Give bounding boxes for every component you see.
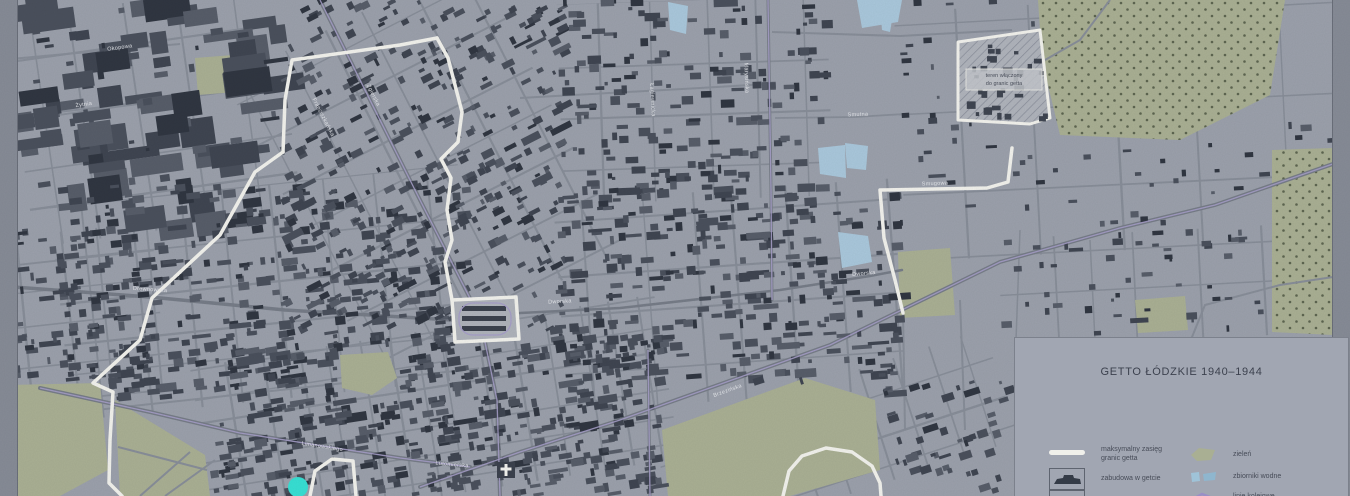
legend-label-greenery: zieleń bbox=[1233, 451, 1251, 460]
legend-panel: GETTO ŁÓDZKIE 1940–1944 maksymalny zasię… bbox=[1014, 337, 1349, 496]
map-page: teren włączonydo granic gettaOkopowaŻytn… bbox=[0, 0, 1350, 496]
legend-swatch-builtup-icon bbox=[1049, 468, 1085, 490]
legend-swatch-greenery-icon bbox=[1189, 446, 1219, 468]
legend-row: linie kolejowe bbox=[1015, 490, 1348, 496]
legend-row: maksymalny zasięg granic getta zieleń bbox=[1015, 446, 1348, 470]
legend-swatch-water-icon bbox=[1189, 468, 1219, 489]
legend-row: zabudowa w getcie zbiorniki wodne bbox=[1015, 468, 1348, 492]
legend-swatch-railway-icon bbox=[1189, 490, 1219, 496]
legend-title: GETTO ŁÓDZKIE 1940–1944 bbox=[1015, 366, 1348, 378]
legend-label-boundary: maksymalny zasięg granic getta bbox=[1101, 446, 1162, 463]
legend-label-water: zbiorniki wodne bbox=[1233, 473, 1281, 482]
legend-swatch-third-icon bbox=[1049, 490, 1085, 496]
legend-swatch-boundary-icon bbox=[1049, 446, 1085, 455]
legend-label-builtup: zabudowa w getcie bbox=[1101, 475, 1161, 484]
